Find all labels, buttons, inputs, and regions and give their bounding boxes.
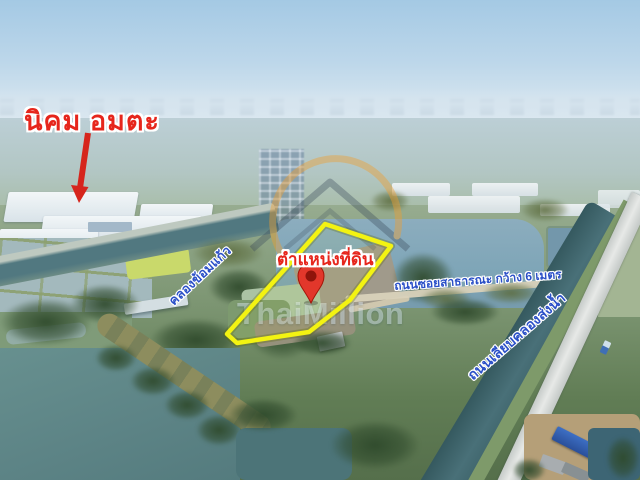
aerial-photo: ThaiMillion นิคม อมตะ ตำแหน่งที่ดิน ถนนซ… bbox=[0, 0, 640, 480]
pointer-arrow bbox=[71, 133, 89, 203]
arrow-head bbox=[71, 185, 89, 203]
annotation-overlay bbox=[0, 0, 640, 480]
land-position-label: ตำแหน่งที่ดิน bbox=[277, 246, 374, 273]
industrial-estate-label: นิคม อมตะ bbox=[24, 99, 160, 142]
